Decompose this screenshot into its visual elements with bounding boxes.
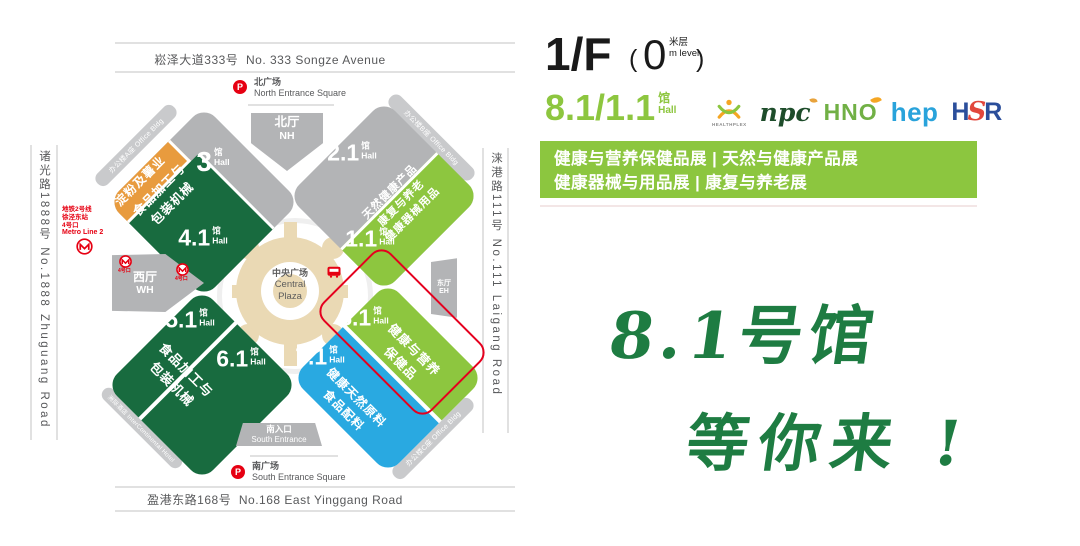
metro-exit-label-2: 4号口 — [175, 276, 188, 282]
hall-4-1-label: 4.1 馆Hall — [178, 227, 228, 250]
south-entrance-cn: 南入口 — [266, 425, 292, 435]
hall-3-number: 3 — [196, 148, 212, 176]
parking-icon: P — [233, 80, 247, 94]
east-hall-cn: 东厅 — [437, 280, 451, 288]
hall-1-1-number: 1.1 — [345, 228, 377, 251]
north-road-label: 崧泽大道333号 No. 333 Songze Avenue — [120, 51, 420, 68]
west-road-label: 诸光路1888号 No.1888 Zhuguang Road — [36, 150, 52, 429]
east-road-label: 涞港路111号 No.111 Laigang Road — [488, 152, 504, 396]
exhibition-banner: 健康与营养保健品展 | 天然与健康产品展 健康器械与用品展 | 康复与养老展 — [540, 141, 977, 198]
hall-2-1-number: 2.1 — [327, 142, 359, 165]
hall-6-1-number: 6.1 — [216, 348, 248, 371]
banner-line-2: 健康器械与用品展 | 康复与养老展 — [554, 172, 977, 196]
metro-logo-icon — [76, 238, 93, 260]
west-road-line-right — [56, 145, 58, 440]
east-hall-en: EH — [439, 288, 449, 296]
floor-unit: 米层 m level — [669, 38, 699, 60]
north-square-underline — [248, 104, 334, 106]
metro-exit-label-1: 4号口 — [118, 268, 131, 274]
hall-5-1-label: 5.1 馆Hall — [165, 309, 215, 332]
hall-7-1-label: 7.1 馆Hall — [295, 346, 345, 369]
hall-4-1-number: 4.1 — [178, 227, 210, 250]
floor-paren-close: ) — [696, 45, 704, 74]
exhibition-map-page: 崧泽大道333号 No. 333 Songze Avenue 诸光路1888号 … — [0, 0, 1080, 546]
north-road-line-top — [115, 42, 515, 44]
north-hall-en: NH — [279, 130, 294, 143]
north-road-line-bottom — [115, 71, 515, 73]
slogan-line-1: 8.1号馆 — [589, 285, 902, 377]
south-road-line-top — [115, 486, 515, 488]
north-square-en: North Entrance Square — [254, 88, 346, 99]
hall-2-1-label: 2.1 馆Hall — [327, 142, 377, 165]
south-square-en: South Entrance Square — [252, 472, 346, 483]
hall-5-1-number: 5.1 — [165, 309, 197, 332]
hall-6-1-label: 6.1 馆Hall — [216, 348, 266, 371]
north-square-cn: 北广场 — [254, 77, 346, 88]
sponsor-logos: HEALTHPLEX npc HNO hep H S R — [712, 94, 1002, 130]
banner-divider — [540, 205, 977, 207]
plaza-cn: 中央广场 — [240, 268, 340, 279]
hall-title-number: 8.1/1.1 — [545, 90, 655, 126]
south-square-label: 南广场 South Entrance Square — [252, 461, 346, 483]
west-hall-cn: 西厅 — [133, 270, 157, 284]
west-hall-en: WH — [136, 284, 154, 297]
north-square-label: 北广场 North Entrance Square — [254, 77, 346, 99]
hall-title: 8.1/1.1 馆 Hall — [545, 90, 676, 126]
north-hall-cn: 北厅 — [274, 115, 299, 130]
floor-unit-en: m level — [669, 49, 699, 60]
north-road-cn: 崧泽大道333号 — [154, 53, 238, 67]
south-road-label: 盈港东路168号 No.168 East Yinggang Road — [120, 491, 430, 508]
parking-icon-south: P — [231, 465, 245, 479]
hall-1-1-label: 1.1 馆Hall — [345, 228, 395, 251]
south-entrance: 南入口 South Entrance — [236, 423, 322, 446]
south-road-cn: 盈港东路168号 — [147, 493, 231, 507]
south-square-overline — [250, 455, 338, 457]
east-road-line-left — [482, 148, 484, 433]
floor-zero: 0 — [643, 31, 666, 79]
shuttle-bus-icon — [327, 265, 341, 283]
hep-logo: hep — [891, 99, 939, 125]
hsr-logo: H S R — [951, 99, 1002, 125]
npc-logo: npc — [760, 100, 811, 125]
south-entrance-en: South Entrance — [251, 435, 306, 444]
south-road-en: No.168 East Yinggang Road — [239, 493, 403, 507]
west-road-line-left — [30, 145, 32, 440]
hno-logo: HNO — [824, 101, 878, 124]
healthplex-logo-icon: HEALTHPLEX — [712, 98, 747, 127]
floor-paren-open: ( — [629, 45, 637, 74]
banner-line-1: 健康与营养保健品展 | 天然与健康产品展 — [554, 148, 977, 172]
north-hall: 北厅 NH — [251, 113, 323, 171]
floor-number: 1/F — [545, 27, 611, 81]
north-road-en: No. 333 Songze Avenue — [246, 53, 386, 67]
south-square-cn: 南广场 — [252, 461, 346, 472]
metro-info-label: 地铁2号线 徐泾东站 4号口 Metro Line 2 — [62, 206, 103, 238]
hall-3-label: 3 馆Hall — [196, 148, 229, 176]
south-road-line-bottom — [115, 510, 515, 512]
hall-7-1-number: 7.1 — [295, 346, 327, 369]
plaza-en1: Central — [240, 279, 340, 291]
east-road-line-right — [507, 148, 509, 433]
slogan-line-2: 等你来 ! — [654, 393, 1007, 483]
